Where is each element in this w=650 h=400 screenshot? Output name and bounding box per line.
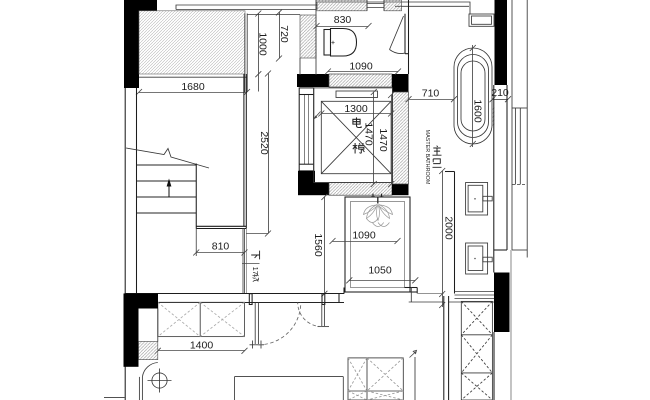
svg-text:1600: 1600: [472, 99, 484, 123]
svg-text:1560: 1560: [312, 233, 324, 257]
svg-text:1680: 1680: [181, 81, 205, 93]
svg-text:2000: 2000: [443, 216, 455, 240]
svg-text:MASTER BATHROOM: MASTER BATHROOM: [424, 130, 430, 185]
svg-text:830: 830: [334, 14, 352, 26]
svg-text:710: 710: [422, 88, 440, 100]
svg-text:1470: 1470: [377, 128, 389, 152]
svg-text:1000: 1000: [257, 32, 269, 56]
svg-text:720: 720: [278, 25, 290, 43]
svg-text:810: 810: [212, 241, 230, 253]
svg-text:17: 17: [251, 267, 260, 275]
svg-text:2520: 2520: [258, 131, 270, 155]
svg-text:1400: 1400: [190, 340, 214, 352]
svg-text:1050: 1050: [368, 265, 392, 277]
svg-text:1090: 1090: [352, 230, 376, 242]
svg-text:1090: 1090: [349, 61, 373, 73]
svg-text:1470: 1470: [363, 122, 375, 146]
